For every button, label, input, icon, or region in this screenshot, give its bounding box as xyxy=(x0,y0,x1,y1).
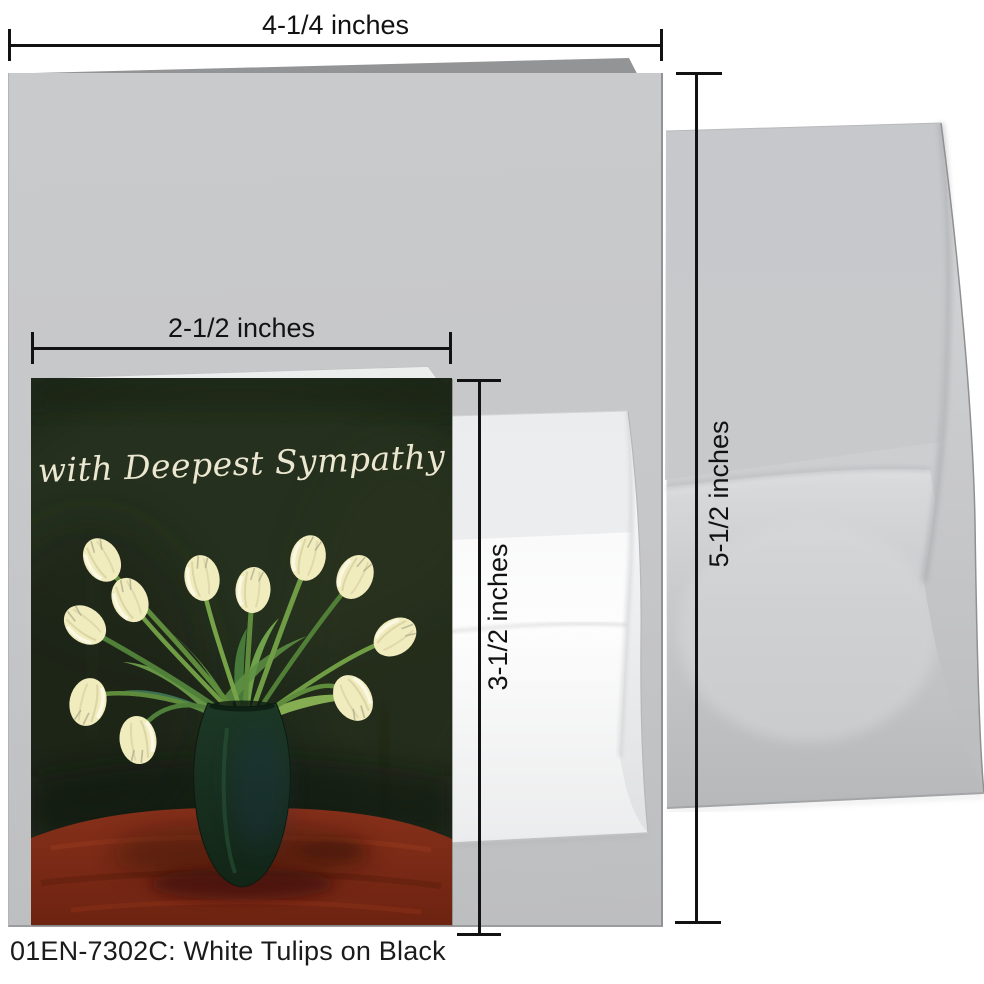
large-card-width-tick-right xyxy=(660,29,663,61)
product-mockup: with Deepest Sympathy 4-1/4 inches 2-1/2… xyxy=(0,0,984,984)
product-caption: 01EN-7302C: White Tulips on Black xyxy=(10,936,446,967)
small-card-page-curl xyxy=(33,365,445,379)
card-greeting-text: with Deepest Sympathy xyxy=(30,417,453,510)
small-card-height-tick-bottom xyxy=(457,933,501,936)
large-card-page-curl xyxy=(8,55,663,74)
large-card-width-line xyxy=(8,44,663,47)
large-card-height-label: 5-1/2 inches xyxy=(705,420,733,567)
small-card-height-tick-top xyxy=(457,379,501,382)
large-card-width-tick-left xyxy=(8,29,11,61)
small-card-height-line xyxy=(478,380,481,936)
small-card-front: with Deepest Sympathy xyxy=(31,378,452,925)
small-card-width-tick-right xyxy=(449,332,452,364)
large-card-height-tick-top xyxy=(676,72,722,75)
large-card-height-line xyxy=(695,72,698,924)
large-card-height-tick-bottom xyxy=(675,921,721,924)
small-card-height-label: 3-1/2 inches xyxy=(484,543,512,690)
small-card-width-label: 2-1/2 inches xyxy=(31,314,452,342)
small-card-width-tick-left xyxy=(31,332,34,364)
large-card-width-label: 4-1/4 inches xyxy=(8,11,663,39)
small-card-width-line xyxy=(31,347,452,350)
